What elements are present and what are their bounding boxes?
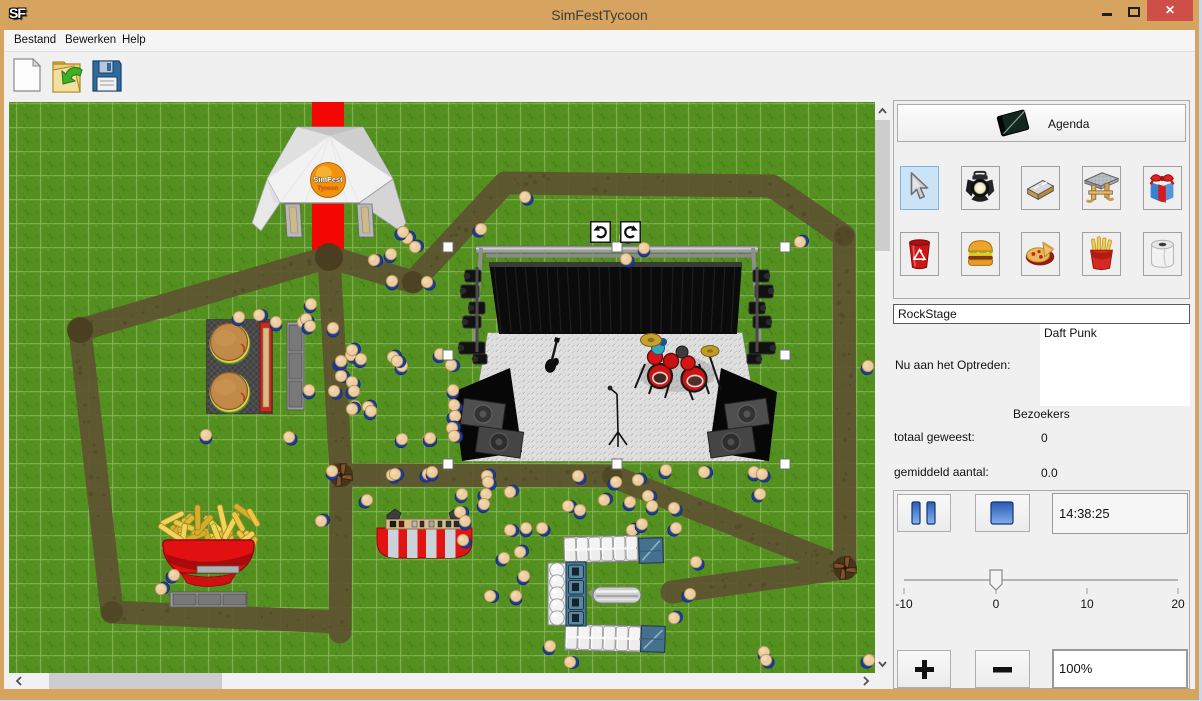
svg-text:SimFest: SimFest <box>313 175 343 184</box>
svg-text:-10: -10 <box>895 597 913 611</box>
svg-text:Tycoon: Tycoon <box>318 186 339 192</box>
svg-text:20: 20 <box>1171 597 1185 611</box>
svg-text:Agenda: Agenda <box>1048 117 1090 131</box>
svg-text:10: 10 <box>1080 597 1094 611</box>
svg-text:0: 0 <box>993 597 1000 611</box>
